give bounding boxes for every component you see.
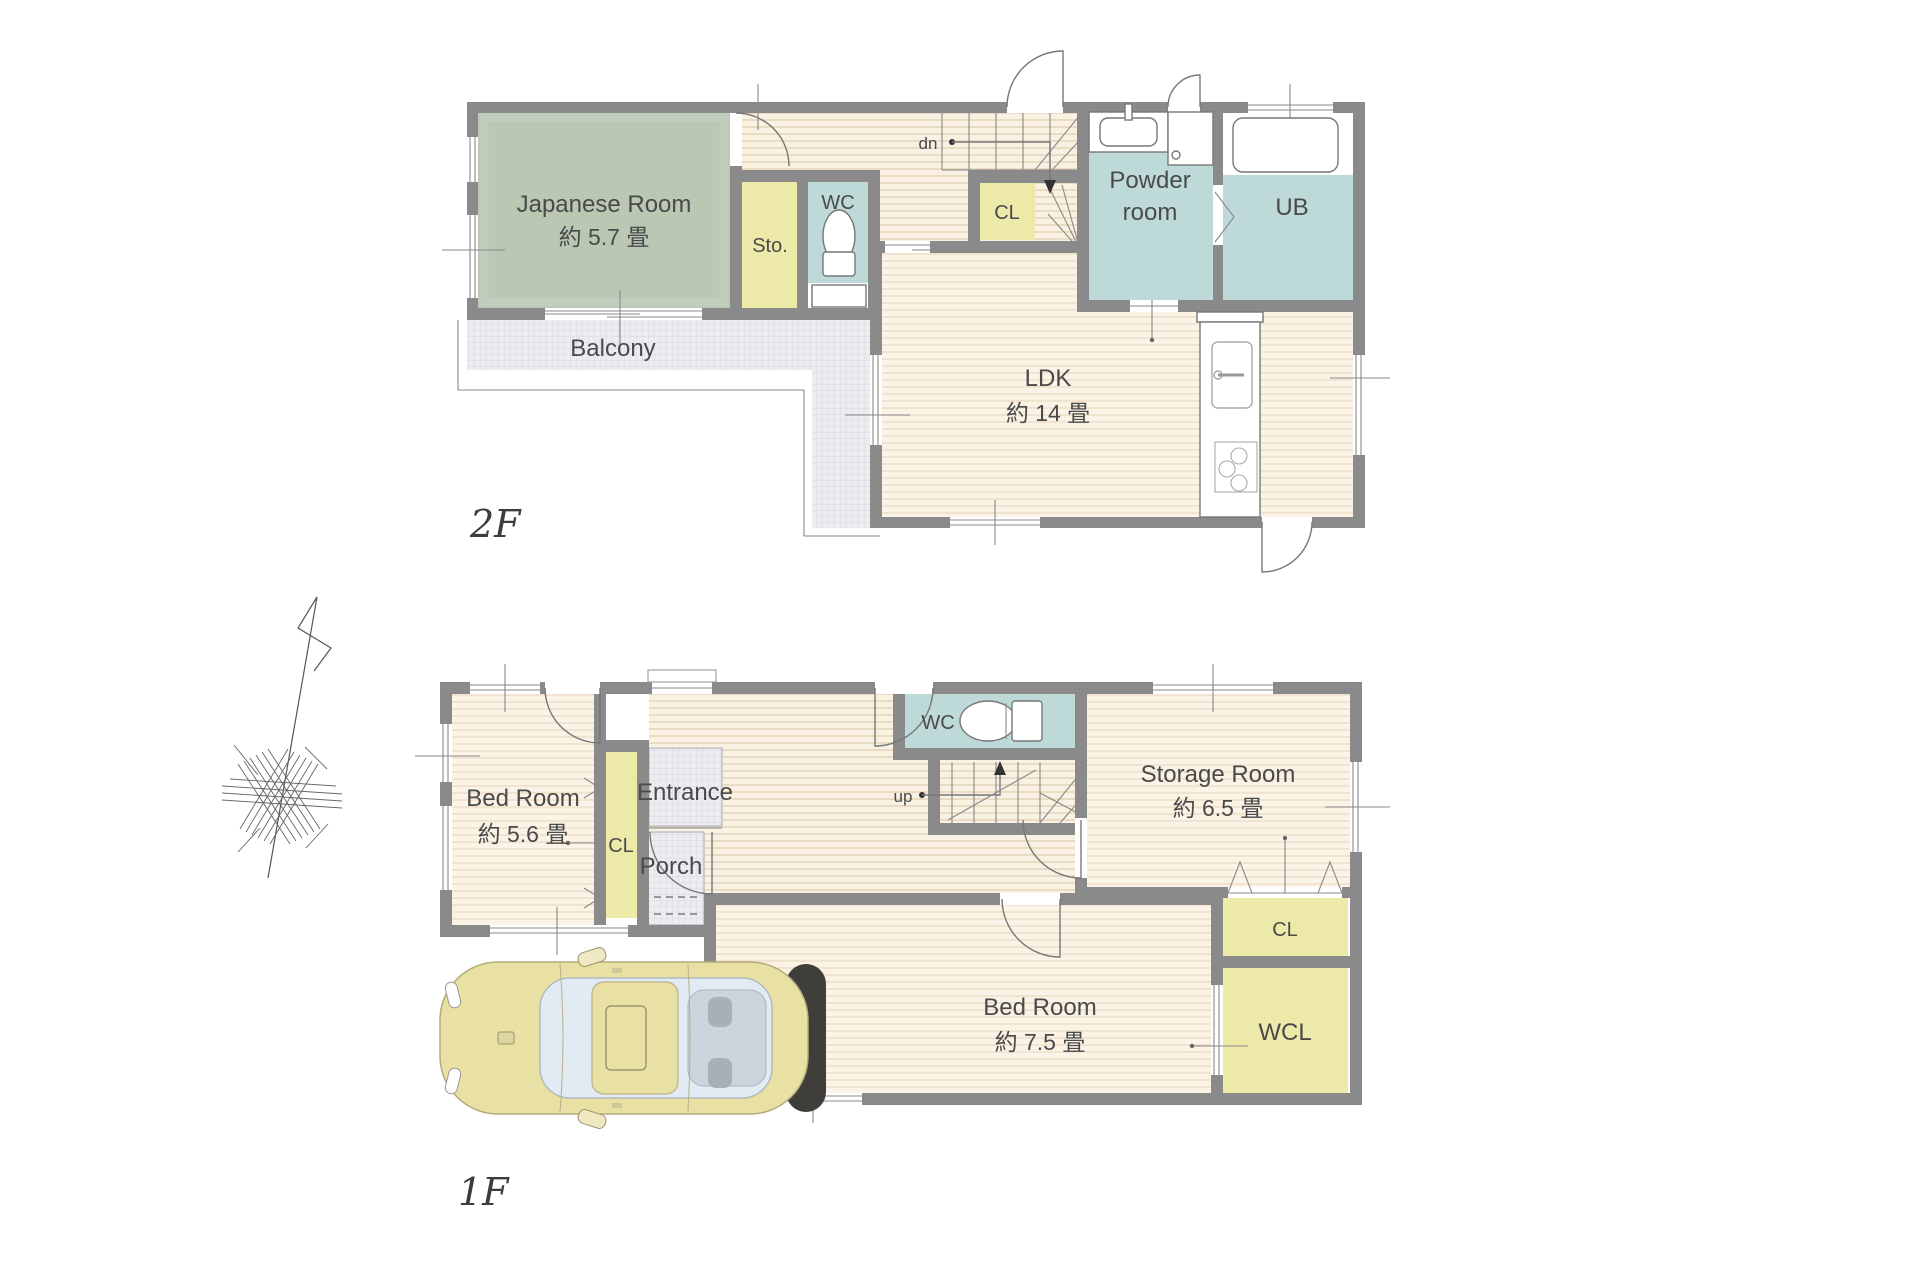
north-arrow [222, 597, 342, 878]
floor-label-1f: 1F [458, 1170, 510, 1214]
storage-room-area: 約 6.5 畳 [1173, 795, 1264, 821]
bedroom-large-label: Bed Room [983, 994, 1096, 1021]
japanese-room-area: 約 5.7 畳 [559, 224, 650, 250]
floor-label-2f: 2F [469, 502, 522, 546]
balcony-label: Balcony [570, 335, 655, 362]
fixtures-1f [960, 701, 1042, 741]
vanity-faucet [1125, 104, 1132, 120]
closet-left-label: CL [608, 835, 634, 857]
bath-label: UB [1275, 194, 1308, 221]
toilet-2f-base [812, 285, 866, 307]
storage-2f-label: Sto. [752, 235, 788, 257]
vanity-basin [1100, 118, 1157, 146]
closet-2f-label: CL [994, 202, 1020, 224]
bedroom-small-area: 約 5.6 畳 [478, 821, 569, 847]
powder-room-label-1: Powder [1109, 167, 1190, 194]
closet-right-label: CL [1272, 919, 1298, 941]
floor-plan-2f: Japanese Room 約 5.7 畳 Sto. WC CL dn Powd… [442, 51, 1390, 572]
bedroom-large-area: 約 7.5 畳 [995, 1029, 1086, 1055]
car-sunroof [606, 1006, 646, 1070]
floor-plan-1f: Bed Room 約 5.6 畳 CL Entrance Porch WC up… [415, 664, 1390, 1214]
toilet-1f-bowl [960, 701, 1016, 741]
car-headrest-right [708, 1058, 732, 1088]
car-handle-bottom [612, 1103, 622, 1108]
car-illustration [440, 946, 826, 1130]
car-headrest-left [708, 997, 732, 1027]
car-handle-top [612, 968, 622, 973]
wc-2f-label: WC [821, 192, 854, 214]
stair-up-label: up [894, 787, 913, 806]
porch-label: Porch [640, 853, 703, 880]
car-badge [498, 1032, 514, 1044]
toilet-1f-tank [1012, 701, 1042, 741]
storage-room-label: Storage Room [1141, 761, 1296, 788]
japanese-room-label: Japanese Room [517, 191, 692, 218]
wcl-label: WCL [1258, 1019, 1311, 1046]
ldk-area: 約 14 畳 [1006, 400, 1090, 426]
ldk-label: LDK [1025, 365, 1072, 392]
powder-room-label-2: room [1123, 199, 1178, 226]
kitchen-counter [1200, 322, 1260, 517]
stair-dn-label: dn [919, 134, 938, 153]
toilet-2f-tank [823, 252, 855, 276]
bedroom-small-label: Bed Room [466, 785, 579, 812]
kitchen-end-panel [1197, 312, 1263, 322]
balcony-floor [467, 320, 880, 528]
wc-1f-label: WC [921, 712, 954, 734]
washer-valve [1172, 151, 1180, 159]
floor-plan-canvas: Japanese Room 約 5.7 畳 Sto. WC CL dn Powd… [0, 0, 1920, 1280]
entrance-label: Entrance [637, 779, 733, 806]
bathtub [1233, 118, 1338, 172]
storage-room-floor [1087, 694, 1350, 887]
